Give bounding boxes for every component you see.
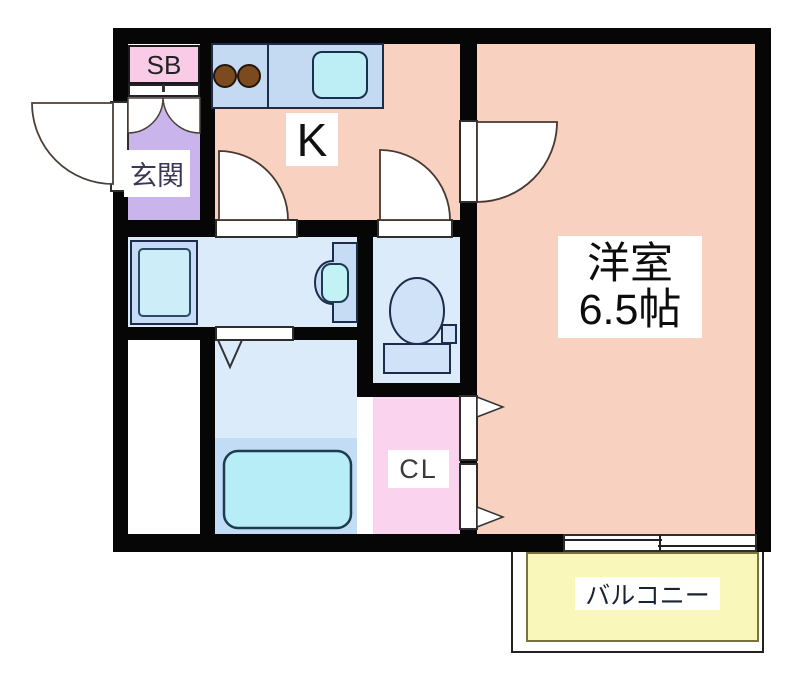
western-room-door-opening [459,120,478,203]
wall-right [755,28,771,552]
wall-void-bathroom [200,327,215,552]
bathroom-door-opening [215,326,294,341]
balcony-label: バルコニー [575,577,720,610]
western-room-size: 6.5帖 [579,287,682,333]
void-space [128,340,200,534]
entrance-label: 玄関 [124,150,190,197]
shoe-box-label: SB [128,47,200,83]
kitchen-label: K [286,113,338,166]
wall-washroom-toilet [357,220,373,397]
room-bathroom-tub-area [215,438,357,534]
shoe-box-cabinet-handle [162,85,165,92]
closet-label: CL [388,450,449,488]
western-room-label: 洋室 6.5帖 [558,236,702,338]
room-bathroom-upper [215,340,357,438]
washroom-door-opening [215,219,298,238]
closet-door-panel-bottom [459,463,478,530]
western-room-name: 洋室 [587,241,673,287]
closet-door-panel-top [459,395,478,461]
toilet-door-opening [377,219,453,238]
floor-plan: SB 玄関 K 洋室 6.5帖 CL バルコニー [0,0,800,678]
balcony-sliding-window [563,534,757,552]
entrance-door-swing [32,103,113,184]
room-washroom [128,237,357,327]
room-toilet [373,237,460,383]
wall-genkan-kitchen [200,28,215,220]
